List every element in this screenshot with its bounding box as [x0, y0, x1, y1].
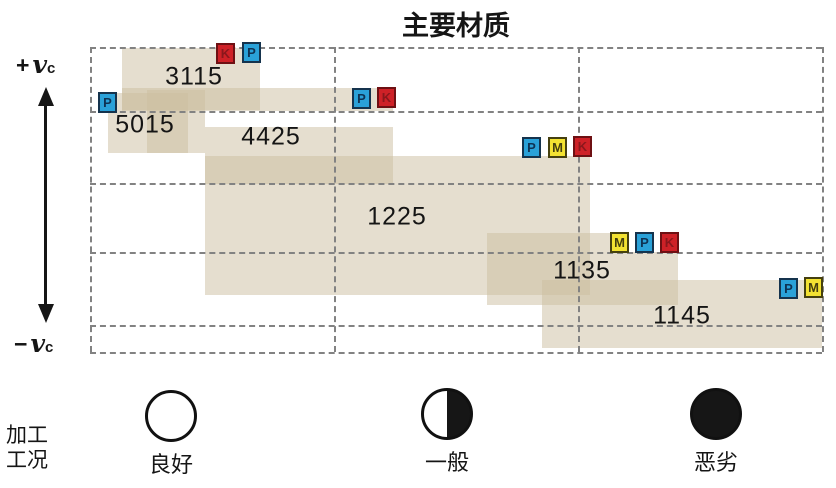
grade-1145-label: 1145 [653, 302, 711, 331]
grid-vline [578, 47, 580, 352]
grade-1225-label: 1225 [367, 203, 427, 232]
condition-circle-full [690, 388, 742, 440]
iso-class-K-badge: K [216, 43, 235, 64]
grade-1135-label: 1135 [553, 257, 611, 286]
grade-application-chart: 主要材质 +vc −vc 311550154425122511351145KPP… [0, 0, 836, 488]
iso-class-M-badge: M [610, 232, 629, 253]
condition-circle-half [421, 388, 473, 440]
iso-class-P-badge: P [352, 88, 371, 109]
iso-class-P-badge: P [242, 42, 261, 63]
condition-label: 良好 [149, 447, 193, 479]
grid-hline [90, 111, 822, 113]
iso-class-M-badge: M [548, 137, 567, 158]
grid-vline [334, 47, 336, 352]
grid-hline [90, 352, 822, 354]
grid-hline [90, 47, 822, 49]
grade-5015-label: 5015 [115, 111, 175, 140]
iso-class-K-badge: K [377, 87, 396, 108]
iso-class-P-badge: P [522, 137, 541, 158]
grid-vline [822, 47, 824, 352]
condition-circle-empty [145, 390, 197, 442]
grade-3115-label: 3115 [165, 63, 223, 92]
grid-vline [90, 47, 92, 352]
iso-class-M-badge: M [804, 277, 823, 298]
iso-class-K-badge: K [660, 232, 679, 253]
grade-4425-label: 4425 [241, 123, 301, 152]
grid-hline [90, 325, 822, 327]
condition-label: 一般 [425, 445, 469, 477]
iso-class-P-badge: P [779, 278, 798, 299]
condition-label: 恶劣 [694, 445, 738, 477]
grid-hline [90, 252, 822, 254]
iso-class-P-badge: P [635, 232, 654, 253]
iso-class-P-badge: P [98, 92, 117, 113]
grid-hline [90, 183, 822, 185]
iso-class-K-badge: K [573, 136, 592, 157]
